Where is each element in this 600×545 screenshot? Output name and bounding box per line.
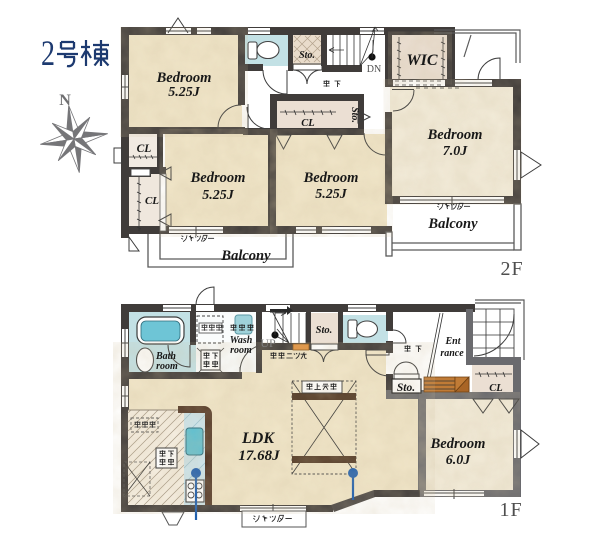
svg-text:UP: UP [260, 336, 276, 350]
svg-text:Bedroom: Bedroom [303, 170, 359, 186]
svg-text:Bedroom: Bedroom [156, 70, 212, 86]
svg-text:6.0J: 6.0J [446, 453, 472, 468]
svg-text:N: N [59, 92, 71, 109]
svg-text:7.0J: 7.0J [443, 144, 469, 159]
svg-text:DN: DN [367, 64, 381, 75]
svg-text:CL: CL [145, 195, 159, 207]
svg-text:Balcony: Balcony [427, 216, 478, 232]
svg-text:Sto.: Sto. [397, 382, 415, 394]
svg-text:Sto.: Sto. [299, 50, 315, 61]
svg-text:CL: CL [301, 118, 314, 129]
svg-text:Bedroom: Bedroom [430, 436, 486, 452]
svg-text:CL: CL [489, 383, 502, 394]
svg-text:room: room [156, 361, 178, 372]
svg-text:5.25J: 5.25J [168, 85, 201, 100]
svg-text:1F: 1F [499, 499, 522, 521]
svg-text:Bedroom: Bedroom [427, 127, 483, 143]
svg-text:5.25J: 5.25J [202, 188, 235, 203]
svg-text:CL: CL [137, 143, 152, 155]
svg-text:Sto.: Sto. [316, 325, 333, 336]
svg-text:Sto.: Sto. [349, 107, 360, 123]
svg-text:rance: rance [440, 348, 464, 359]
svg-text:17.68J: 17.68J [238, 448, 280, 464]
svg-text:Ent: Ent [444, 336, 461, 347]
svg-text:Balcony: Balcony [220, 248, 271, 264]
svg-text:2F: 2F [500, 258, 523, 280]
svg-text:2: 2 [41, 33, 55, 73]
svg-text:room: room [230, 345, 252, 356]
svg-text:WIC: WIC [406, 52, 437, 69]
svg-text:5.25J: 5.25J [315, 187, 348, 202]
svg-text:LDK: LDK [241, 430, 275, 447]
svg-text:Bedroom: Bedroom [190, 170, 246, 186]
